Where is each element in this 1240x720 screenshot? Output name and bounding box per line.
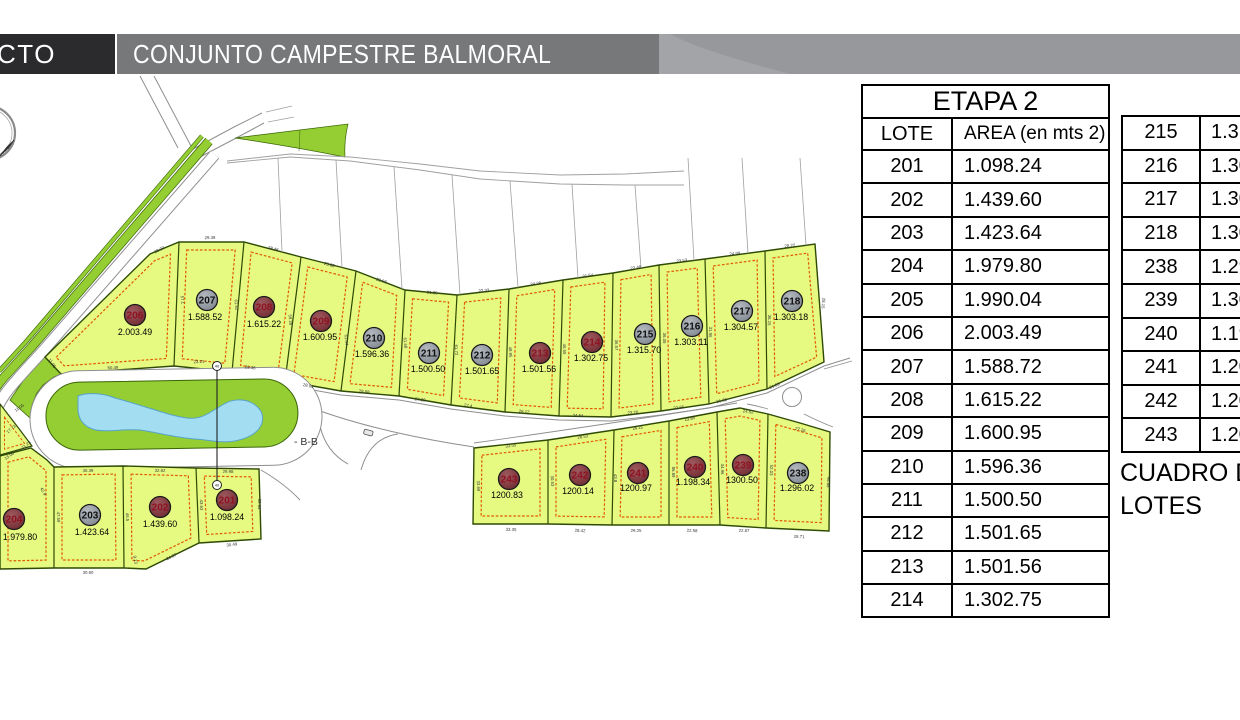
svg-text:22.32: 22.32 (478, 287, 490, 293)
svg-text:36.57: 36.57 (614, 340, 619, 351)
svg-text:31.95: 31.95 (708, 327, 713, 339)
svg-text:1200.83: 1200.83 (491, 490, 523, 500)
svg-text:201: 201 (219, 496, 236, 507)
svg-text:47.59: 47.59 (56, 511, 61, 523)
svg-text:1.588.52: 1.588.52 (188, 312, 222, 322)
svg-text:43.63: 43.63 (199, 499, 205, 511)
svg-text:57.1: 57.1 (180, 295, 186, 304)
svg-text:36.05: 36.05 (662, 333, 667, 344)
svg-text:22.65: 22.65 (673, 404, 685, 410)
svg-text:1.596.36: 1.596.36 (355, 349, 389, 359)
svg-text:61.44: 61.44 (344, 334, 350, 346)
svg-text:46.55: 46.55 (562, 344, 567, 355)
svg-text:34.96: 34.96 (720, 464, 725, 475)
svg-text:1.304.57: 1.304.57 (724, 322, 758, 332)
svg-text:1.615.22: 1.615.22 (247, 319, 281, 329)
svg-text:30.39: 30.39 (83, 468, 94, 473)
svg-text:52.03: 52.03 (769, 465, 774, 477)
svg-text:30.53: 30.53 (550, 475, 555, 487)
svg-text:28.08: 28.08 (359, 388, 371, 394)
svg-text:46.5: 46.5 (125, 513, 130, 522)
svg-text:23.76: 23.76 (627, 409, 639, 415)
svg-text:209: 209 (313, 317, 330, 328)
svg-text:241: 241 (630, 469, 647, 480)
svg-text:206: 206 (127, 311, 144, 322)
svg-text:50.49: 50.49 (107, 365, 119, 371)
svg-text:203: 203 (82, 511, 99, 522)
svg-text:218: 218 (784, 297, 801, 308)
svg-text:1200.97: 1200.97 (620, 483, 652, 493)
svg-text:1.439.60: 1.439.60 (143, 519, 177, 529)
svg-text:1.296.02: 1.296.02 (780, 483, 814, 493)
svg-text:1.303.18: 1.303.18 (774, 312, 808, 322)
svg-text:1.501.56: 1.501.56 (522, 364, 556, 374)
svg-text:215: 215 (637, 330, 654, 341)
svg-text:204: 204 (6, 515, 23, 526)
svg-text:1.302.75: 1.302.75 (574, 353, 608, 363)
svg-text:30.49: 30.49 (226, 541, 238, 547)
svg-text:40: 40 (215, 364, 220, 369)
svg-text:61.68: 61.68 (403, 337, 409, 349)
svg-text:1.303.11: 1.303.11 (674, 337, 708, 347)
svg-text:214: 214 (584, 338, 601, 349)
svg-text:32.62: 32.62 (155, 468, 166, 473)
svg-text:238: 238 (790, 469, 807, 480)
svg-text:1.979.80: 1.979.80 (3, 532, 37, 542)
svg-text:29.98: 29.98 (223, 469, 234, 474)
svg-text:43.8: 43.8 (613, 474, 618, 483)
svg-text:28.71: 28.71 (794, 534, 806, 540)
svg-text:86.89: 86.89 (671, 467, 676, 478)
svg-text:59.28: 59.28 (288, 314, 294, 326)
svg-text:211: 211 (421, 349, 438, 360)
svg-text:1200.14: 1200.14 (562, 486, 594, 496)
svg-text:49.95: 49.95 (508, 346, 513, 358)
svg-text:36.15: 36.15 (767, 315, 773, 327)
svg-text:2.003.49: 2.003.49 (118, 327, 152, 337)
svg-text:21.68: 21.68 (716, 397, 728, 404)
svg-text:202: 202 (152, 503, 169, 514)
svg-text:61.72: 61.72 (454, 344, 460, 356)
svg-text:210: 210 (366, 334, 383, 345)
svg-text:207: 207 (199, 296, 216, 307)
svg-text:217: 217 (734, 307, 751, 318)
svg-text:33.35: 33.35 (506, 527, 518, 532)
svg-text:1.500.50: 1.500.50 (411, 364, 445, 374)
svg-text:1.423.64: 1.423.64 (75, 527, 109, 537)
svg-text:29.25: 29.25 (631, 528, 642, 533)
svg-text:240: 240 (687, 463, 704, 474)
svg-text:27.29: 27.29 (415, 396, 427, 402)
svg-text:1300.50: 1300.50 (726, 475, 758, 485)
svg-text:212: 212 (474, 351, 491, 362)
svg-text:1.600.95: 1.600.95 (303, 332, 337, 342)
svg-text:23.21: 23.21 (193, 359, 205, 365)
svg-text:28.12: 28.12 (519, 409, 531, 415)
svg-text:239: 239 (735, 461, 752, 472)
svg-text:22.87: 22.87 (739, 528, 750, 533)
svg-text:40: 40 (215, 483, 220, 488)
svg-text:32.84: 32.84 (257, 499, 262, 511)
svg-text:28.42: 28.42 (575, 528, 587, 533)
svg-text:208: 208 (256, 303, 273, 314)
svg-text:22.58: 22.58 (687, 528, 699, 533)
svg-text:61.62: 61.62 (234, 299, 240, 311)
svg-text:27.4: 27.4 (464, 402, 474, 408)
svg-text:28.15: 28.15 (821, 298, 827, 310)
svg-text:21.25: 21.25 (427, 290, 439, 296)
svg-text:1.315.70: 1.315.70 (627, 345, 661, 355)
svg-text:24.54: 24.54 (573, 413, 585, 418)
svg-text:30.60: 30.60 (83, 570, 94, 575)
svg-text:33.68: 33.68 (476, 480, 482, 492)
svg-text:1.198.34: 1.198.34 (676, 477, 710, 487)
svg-text:243: 243 (501, 475, 518, 486)
svg-text:1.098.24: 1.098.24 (210, 512, 244, 522)
svg-text:48.88: 48.88 (826, 477, 831, 489)
svg-text:242: 242 (572, 471, 589, 482)
svg-text:216: 216 (684, 322, 701, 333)
svg-text:1.501.65: 1.501.65 (465, 366, 499, 376)
svg-text:213: 213 (532, 349, 549, 360)
svg-text:29.38: 29.38 (205, 235, 216, 240)
svg-text:- B-B: - B-B (294, 436, 318, 448)
